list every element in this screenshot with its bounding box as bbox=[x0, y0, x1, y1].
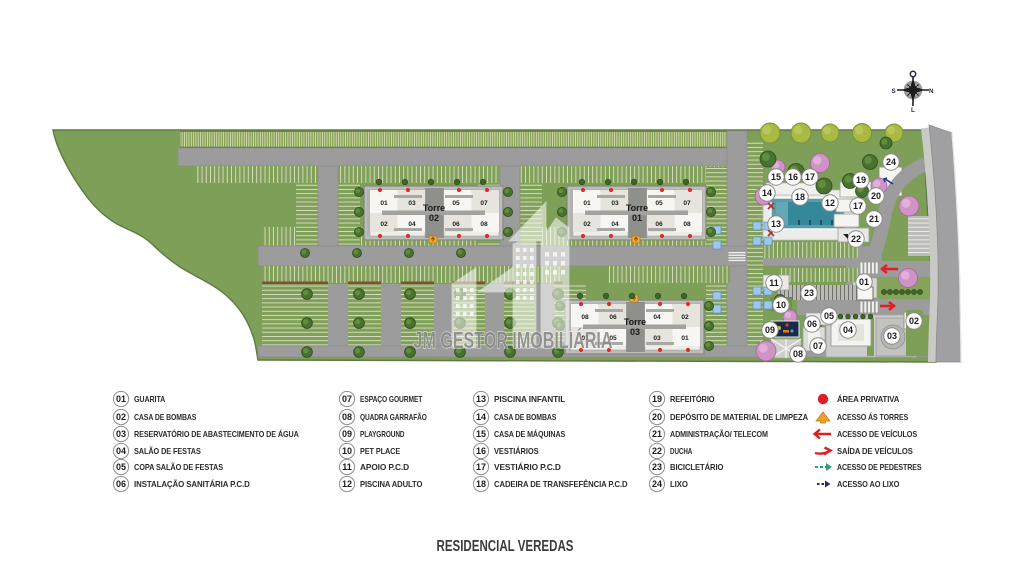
svg-text:03: 03 bbox=[611, 200, 619, 207]
svg-text:ACESSO ÁS TORRES: ACESSO ÁS TORRES bbox=[837, 411, 909, 422]
svg-text:11: 11 bbox=[769, 278, 779, 288]
svg-text:03: 03 bbox=[408, 200, 416, 207]
svg-text:02: 02 bbox=[380, 221, 388, 228]
svg-text:RESIDENCIAL VEREDAS: RESIDENCIAL VEREDAS bbox=[437, 538, 574, 555]
svg-text:13: 13 bbox=[771, 219, 781, 229]
svg-text:CASA DE MÁQUINAS: CASA DE MÁQUINAS bbox=[494, 428, 566, 439]
svg-text:08: 08 bbox=[342, 412, 352, 422]
svg-text:08: 08 bbox=[581, 314, 589, 321]
svg-text:19: 19 bbox=[856, 175, 866, 185]
svg-text:ADMINISTRAÇÃO/ TELECOM: ADMINISTRAÇÃO/ TELECOM bbox=[670, 429, 768, 439]
svg-text:DEPÓSITO DE MATERIAL DE LIMPEZ: DEPÓSITO DE MATERIAL DE LIMPEZA bbox=[670, 411, 808, 422]
svg-text:CASA DE BOMBAS: CASA DE BOMBAS bbox=[134, 412, 197, 422]
svg-text:17: 17 bbox=[805, 172, 815, 182]
svg-text:01: 01 bbox=[583, 200, 591, 207]
svg-text:06: 06 bbox=[807, 319, 817, 329]
svg-text:08: 08 bbox=[683, 221, 691, 228]
svg-text:03: 03 bbox=[887, 331, 897, 341]
svg-text:12: 12 bbox=[342, 479, 352, 489]
svg-text:INSTALAÇÃO SANITÁRIA P.C.D: INSTALAÇÃO SANITÁRIA P.C.D bbox=[134, 478, 250, 489]
svg-text:APOIO P.C.D: APOIO P.C.D bbox=[360, 462, 409, 472]
svg-text:13: 13 bbox=[476, 394, 486, 404]
svg-text:04: 04 bbox=[408, 221, 416, 228]
svg-text:19: 19 bbox=[652, 394, 662, 404]
svg-text:23: 23 bbox=[804, 288, 814, 298]
svg-text:11: 11 bbox=[342, 462, 352, 472]
svg-text:01: 01 bbox=[681, 335, 689, 342]
svg-text:04: 04 bbox=[653, 314, 661, 321]
svg-text:07: 07 bbox=[813, 341, 823, 351]
svg-text:09: 09 bbox=[342, 429, 352, 439]
svg-text:24: 24 bbox=[652, 479, 662, 489]
svg-text:04: 04 bbox=[611, 221, 619, 228]
svg-text:21: 21 bbox=[652, 429, 662, 439]
svg-text:20: 20 bbox=[871, 191, 881, 201]
svg-text:PISCINA INFANTIL: PISCINA INFANTIL bbox=[494, 394, 565, 404]
svg-text:05: 05 bbox=[116, 462, 126, 472]
svg-text:CASA DE BOMBAS: CASA DE BOMBAS bbox=[494, 412, 557, 422]
svg-text:01: 01 bbox=[380, 200, 388, 207]
svg-text:07: 07 bbox=[480, 200, 488, 207]
svg-text:22: 22 bbox=[652, 446, 662, 456]
svg-text:02: 02 bbox=[583, 221, 591, 228]
svg-text:ACESSO AO LIXO: ACESSO AO LIXO bbox=[837, 479, 900, 489]
svg-text:02: 02 bbox=[681, 314, 689, 321]
svg-text:SALÃO DE FESTAS: SALÃO DE FESTAS bbox=[134, 446, 201, 456]
svg-text:21: 21 bbox=[869, 214, 879, 224]
svg-text:01: 01 bbox=[632, 213, 642, 223]
svg-text:09: 09 bbox=[765, 325, 775, 335]
svg-text:02: 02 bbox=[116, 412, 126, 422]
svg-text:22: 22 bbox=[851, 234, 861, 244]
svg-text:14: 14 bbox=[476, 412, 486, 422]
svg-text:Torre: Torre bbox=[626, 203, 648, 213]
svg-text:N: N bbox=[929, 88, 934, 95]
svg-text:03: 03 bbox=[630, 327, 640, 337]
svg-text:06: 06 bbox=[116, 479, 126, 489]
svg-text:JM GESTOR IMOBILIÁRIA: JM GESTOR IMOBILIÁRIA bbox=[414, 326, 613, 353]
svg-text:S: S bbox=[892, 88, 896, 95]
svg-text:PET PLACE: PET PLACE bbox=[360, 446, 401, 456]
svg-text:24: 24 bbox=[886, 157, 896, 167]
svg-text:Torre: Torre bbox=[423, 203, 445, 213]
svg-text:18: 18 bbox=[476, 479, 486, 489]
svg-text:COPA SALÃO DE FESTAS: COPA SALÃO DE FESTAS bbox=[134, 462, 223, 472]
svg-text:02: 02 bbox=[909, 316, 919, 326]
svg-text:ACESSO DE VEÍCULOS: ACESSO DE VEÍCULOS bbox=[837, 428, 918, 439]
svg-text:15: 15 bbox=[476, 429, 486, 439]
svg-text:GUARITA: GUARITA bbox=[134, 394, 165, 404]
svg-text:06: 06 bbox=[452, 221, 460, 228]
svg-text:04: 04 bbox=[843, 325, 853, 335]
svg-text:05: 05 bbox=[824, 311, 834, 321]
svg-text:04: 04 bbox=[116, 446, 126, 456]
svg-text:05: 05 bbox=[655, 200, 663, 207]
svg-text:10: 10 bbox=[342, 446, 352, 456]
svg-text:VESTIÁRIO P.C.D: VESTIÁRIO P.C.D bbox=[494, 461, 561, 472]
svg-text:08: 08 bbox=[480, 221, 488, 228]
svg-text:CADEIRA DE TRANSFEFÊNCIA P.C.D: CADEIRA DE TRANSFEFÊNCIA P.C.D bbox=[494, 478, 628, 489]
svg-text:L: L bbox=[911, 107, 915, 114]
svg-text:01: 01 bbox=[859, 277, 869, 287]
svg-text:03: 03 bbox=[116, 429, 126, 439]
svg-text:01: 01 bbox=[116, 394, 126, 404]
svg-text:20: 20 bbox=[652, 412, 662, 422]
svg-text:VESTIÁRIOS: VESTIÁRIOS bbox=[494, 445, 539, 456]
svg-text:DUCHA: DUCHA bbox=[670, 446, 692, 456]
svg-text:LIXO: LIXO bbox=[670, 479, 688, 489]
svg-text:14: 14 bbox=[762, 188, 772, 198]
svg-text:07: 07 bbox=[342, 394, 352, 404]
svg-text:ÁREA PRIVATIVA: ÁREA PRIVATIVA bbox=[837, 393, 899, 404]
svg-text:02: 02 bbox=[429, 213, 439, 223]
svg-text:07: 07 bbox=[683, 200, 691, 207]
svg-text:REFEITÓRIO: REFEITÓRIO bbox=[670, 393, 715, 404]
svg-text:12: 12 bbox=[825, 198, 835, 208]
svg-text:ESPAÇO GOURMET: ESPAÇO GOURMET bbox=[360, 394, 423, 404]
svg-text:16: 16 bbox=[788, 172, 798, 182]
svg-text:03: 03 bbox=[653, 335, 661, 342]
svg-text:SAÍDA DE VEÍCULOS: SAÍDA DE VEÍCULOS bbox=[837, 445, 913, 456]
svg-text:06: 06 bbox=[609, 314, 617, 321]
svg-text:17: 17 bbox=[476, 462, 486, 472]
svg-text:06: 06 bbox=[655, 221, 663, 228]
svg-text:Torre: Torre bbox=[624, 317, 646, 327]
svg-text:PLAYGROUND: PLAYGROUND bbox=[360, 429, 405, 439]
svg-text:BICICLETÁRIO: BICICLETÁRIO bbox=[670, 461, 724, 472]
svg-text:10: 10 bbox=[776, 300, 786, 310]
svg-text:ACESSO DE PEDESTRES: ACESSO DE PEDESTRES bbox=[837, 462, 922, 472]
svg-text:08: 08 bbox=[793, 349, 803, 359]
svg-text:18: 18 bbox=[795, 192, 805, 202]
svg-text:RESERVATÓRIO DE ABASTECIMENTO: RESERVATÓRIO DE ABASTECIMENTO DE ÁGUA bbox=[134, 428, 299, 439]
svg-text:QUADRA GARRAFÃO: QUADRA GARRAFÃO bbox=[360, 412, 427, 422]
svg-text:17: 17 bbox=[853, 201, 863, 211]
svg-text:PISCINA ADULTO: PISCINA ADULTO bbox=[360, 479, 423, 489]
svg-text:15: 15 bbox=[771, 172, 781, 182]
svg-text:23: 23 bbox=[652, 462, 662, 472]
svg-text:16: 16 bbox=[476, 446, 486, 456]
svg-text:05: 05 bbox=[452, 200, 460, 207]
